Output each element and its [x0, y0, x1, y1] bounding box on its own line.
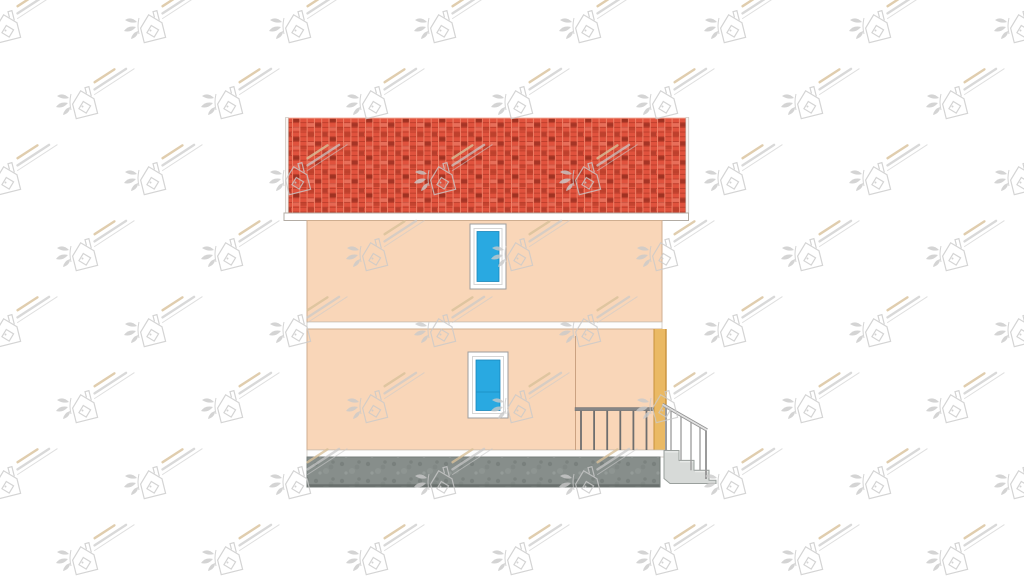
stairs-stringer: [664, 451, 716, 484]
corner-trim: [654, 329, 667, 452]
foundation-texture: [307, 457, 660, 487]
roof-tile-shading: [288, 118, 686, 213]
window-upper: [470, 224, 506, 289]
entrance-stairs: [663, 405, 717, 484]
window-upper-glass: [477, 232, 499, 282]
porch-handrail: [575, 408, 654, 411]
window-lower-glass: [476, 360, 500, 411]
stairs-steps: [664, 451, 716, 484]
roof: [284, 118, 689, 221]
fascia-board: [284, 213, 689, 221]
roof-right-trim: [686, 118, 689, 214]
plinth-strip: [307, 450, 667, 457]
roof-ridge-line: [288, 118, 686, 119]
foundation-bottom-shadow: [308, 484, 660, 486]
render-canvas: [0, 0, 1024, 576]
stair-handrail-highlight: [663, 405, 708, 431]
window-lower: [468, 352, 508, 418]
roof-left-trim: [285, 118, 288, 214]
house-elevation-drawing: [0, 0, 1024, 576]
floor-divider-band: [307, 322, 662, 329]
